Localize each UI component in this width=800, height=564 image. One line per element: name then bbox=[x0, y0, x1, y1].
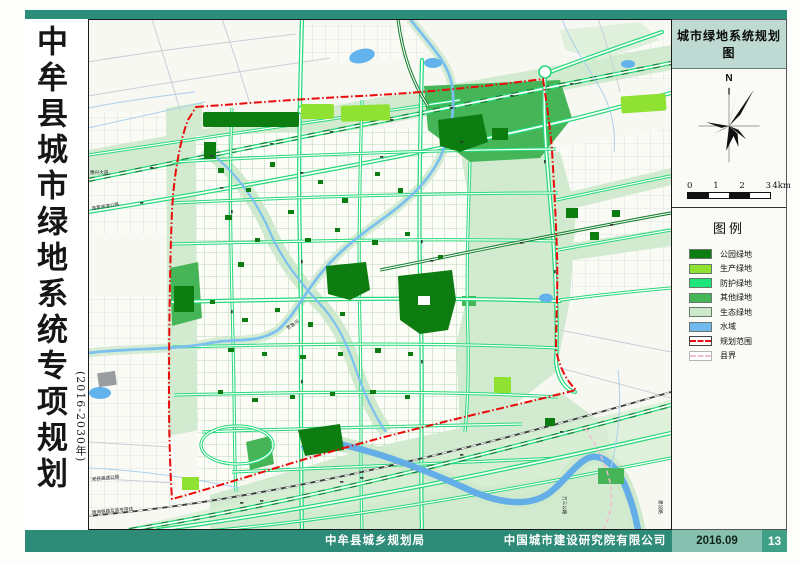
footer-page-number: 13 bbox=[762, 530, 787, 552]
legend-item: 公园绿地 bbox=[672, 247, 786, 262]
legend-swatch-other-green bbox=[689, 293, 712, 303]
scale-end-label: 4km bbox=[772, 181, 791, 191]
scale-tick: 2 bbox=[739, 181, 744, 191]
legend-item: 生态绿地 bbox=[672, 305, 786, 320]
legend-swatch-planning-boundary bbox=[689, 336, 712, 346]
scale-tick: 1 bbox=[713, 181, 718, 191]
scale-segments bbox=[687, 192, 771, 199]
legend-swatch-ecological-green bbox=[689, 307, 712, 317]
legend-swatch-water bbox=[689, 322, 712, 332]
footer-bar: 中牟县城乡规划局 中国城市建设研究院有限公司 2016.09 13 bbox=[25, 530, 787, 552]
compass-section: N 0 bbox=[672, 69, 786, 208]
footer-date: 2016.09 bbox=[672, 530, 762, 552]
legend-swatch-protective-green bbox=[689, 278, 712, 288]
document-title-vertical: 中牟县城市绿地系统专项规划 bbox=[33, 25, 64, 525]
map-frame: 豫兴大道 连霍高速公路 郑民高速公路 陇海铁路及其专用线 万三公路 建设路 贾鲁… bbox=[88, 19, 672, 530]
compass-rose-icon bbox=[690, 84, 768, 168]
svg-text:豫兴大道: 豫兴大道 bbox=[90, 169, 109, 176]
legend-item: 其他绿地 bbox=[672, 291, 786, 306]
scale-tick: 0 bbox=[687, 181, 692, 191]
legend-title: 图例 bbox=[672, 218, 786, 237]
legend-section: 图例 公园绿地 生产绿地 防护绿地 其他绿地 bbox=[672, 208, 786, 363]
scale-tick: 3 bbox=[766, 181, 771, 191]
footer-org-planning-bureau: 中牟县城乡规划局 bbox=[265, 530, 485, 552]
legend-swatch-production-green bbox=[689, 264, 712, 274]
svg-text:万三公路: 万三公路 bbox=[561, 496, 568, 515]
svg-text:建设路: 建设路 bbox=[657, 500, 664, 514]
legend-item: 规划范围 bbox=[672, 334, 786, 349]
legend-swatch-county-boundary bbox=[689, 351, 712, 361]
map-title: 城市绿地系统规划图 bbox=[672, 20, 786, 69]
map-sidebar: 城市绿地系统规划图 N bbox=[672, 19, 787, 530]
left-title-column: 中牟县城市绿地系统专项规划 (2016-2030年) bbox=[25, 19, 88, 530]
north-label: N bbox=[672, 73, 786, 84]
footer-org-design-institute: 中国城市建设研究院有限公司 bbox=[465, 530, 705, 552]
legend-item: 生产绿地 bbox=[672, 262, 786, 277]
map-canvas: 豫兴大道 连霍高速公路 郑民高速公路 陇海铁路及其专用线 万三公路 建设路 贾鲁… bbox=[89, 20, 671, 529]
scale-bar: 0 1 2 3 4km bbox=[687, 181, 771, 199]
legend-item: 水域 bbox=[672, 320, 786, 335]
document-title-years: (2016-2030年) bbox=[72, 371, 88, 462]
top-teal-strip bbox=[25, 10, 787, 19]
legend-swatch-park-green bbox=[689, 249, 712, 259]
plan-document-page: 中牟县城市绿地系统专项规划 (2016-2030年) bbox=[0, 0, 800, 564]
legend-item: 县界 bbox=[672, 349, 786, 364]
legend-item: 防护绿地 bbox=[672, 276, 786, 291]
